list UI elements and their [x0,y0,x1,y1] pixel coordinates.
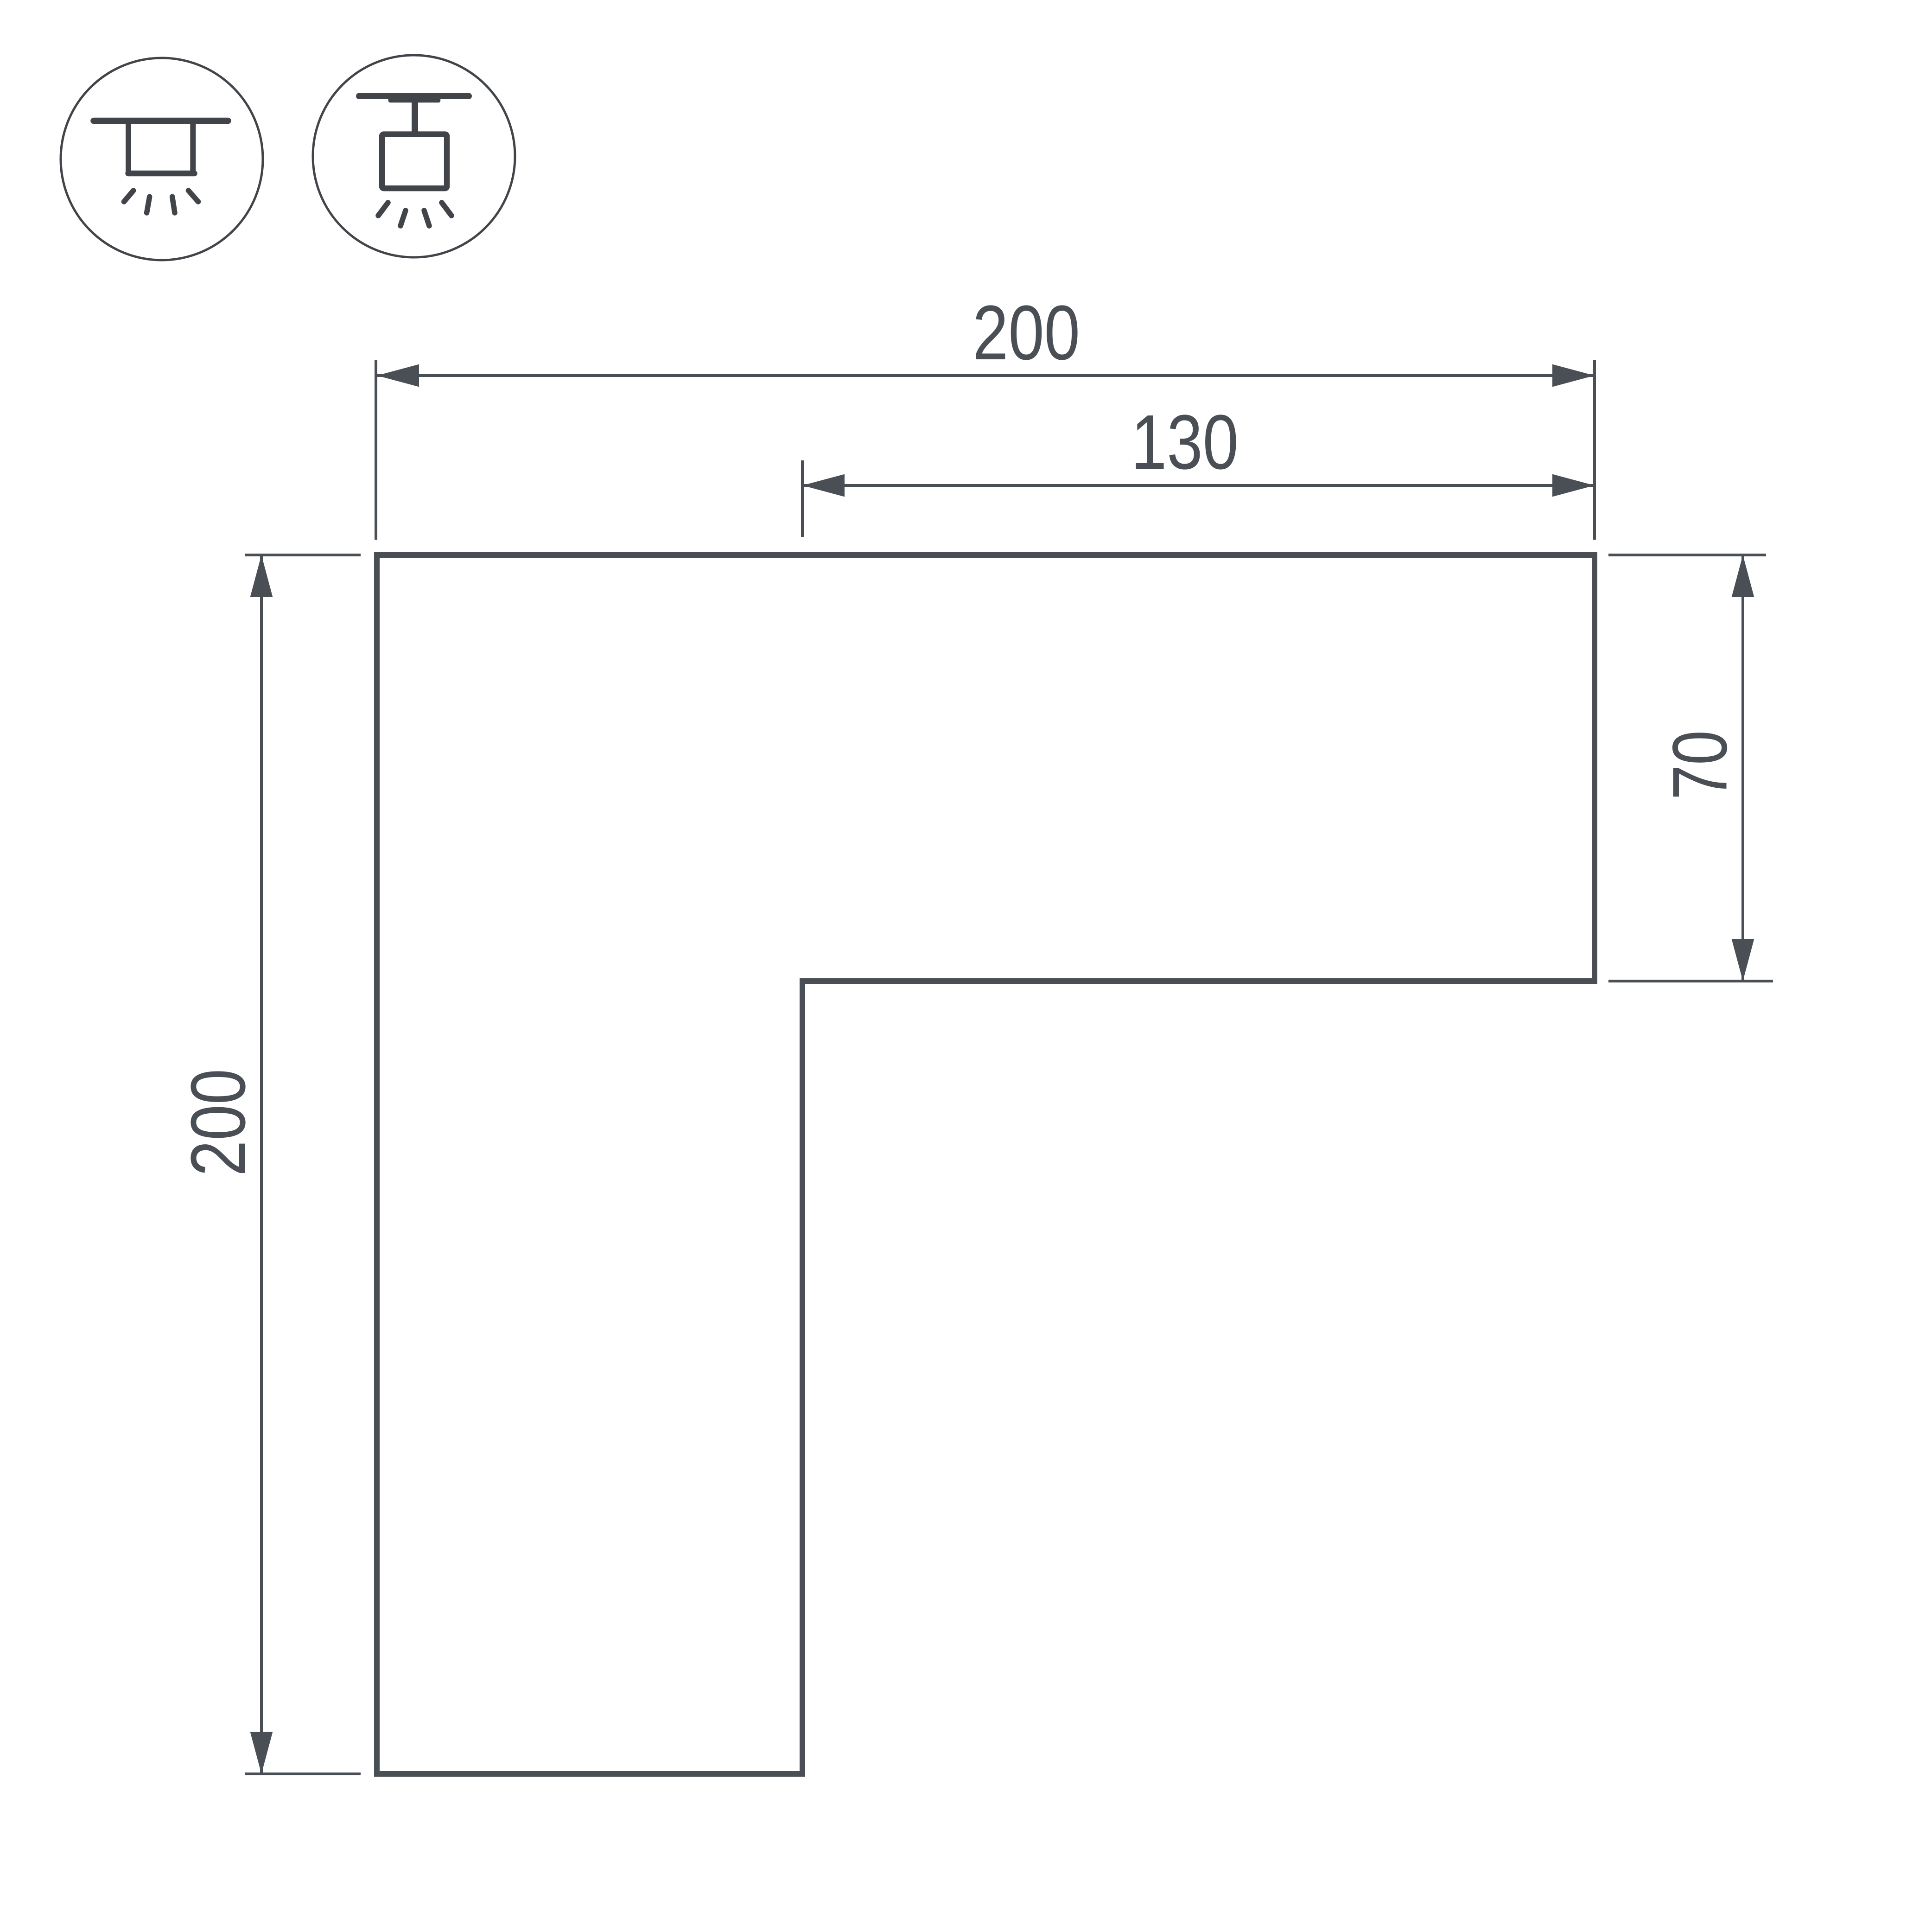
svg-text:200: 200 [972,290,1080,376]
svg-text:130: 130 [1131,399,1239,485]
svg-text:200: 200 [175,1069,261,1176]
svg-text:70: 70 [1657,730,1743,800]
